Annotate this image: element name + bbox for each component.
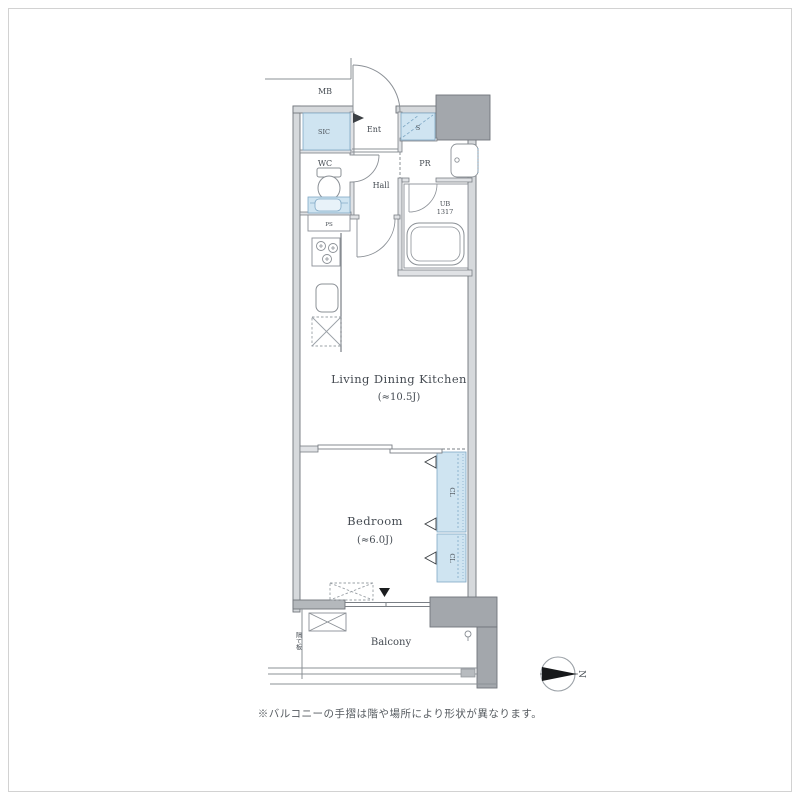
hatch-marker-icon (379, 588, 390, 597)
toilet-fixture (317, 168, 341, 200)
bedroom-area: (≈6.0J) (357, 535, 393, 546)
shoe-closet-label: SIC (318, 128, 330, 136)
bedroom-label: Bedroom (347, 514, 403, 528)
entrance-door-swing (352, 65, 400, 152)
compass-north-icon: N (540, 657, 586, 691)
powder-room-label: PR (419, 159, 431, 168)
bathtub-fixture (404, 184, 468, 268)
unit-bath-label: UB (440, 200, 450, 208)
wc-door-swing (352, 155, 379, 182)
kitchen-sink-fixture (316, 284, 338, 312)
refrigerator-space (312, 317, 341, 346)
closet-lower-label: CL (448, 553, 456, 563)
ac-indoor-space (330, 583, 373, 600)
closet-upper-label: CL (448, 487, 456, 497)
wc-basin-fixture (308, 197, 350, 213)
closet-door-markers (425, 456, 436, 564)
wc-label: WC (318, 159, 332, 168)
hall-label: Hall (373, 181, 390, 190)
balcony-label: Balcony (371, 637, 412, 648)
floorplan-drawing: N MB Ent S SIC WC Hall PR UB 1317 PS Liv… (0, 0, 800, 800)
balcony-drain-icon (465, 631, 471, 641)
pipe-space-label: PS (325, 222, 333, 228)
balcony-partition-label: 隔て板 (295, 631, 302, 651)
ldk-label: Living Dining Kitchen (331, 372, 467, 386)
ldk-door-swing (357, 219, 395, 257)
entrance-label: Ent (367, 125, 382, 134)
bedroom-window (345, 603, 430, 607)
meter-box-outline (265, 58, 351, 79)
ac-outdoor-space (309, 613, 346, 631)
ldk-area: (≈10.5J) (378, 392, 421, 403)
balcony-step-box (461, 669, 475, 677)
balcony-note: ※バルコニーの手摺は階や場所により形状が異なります。 (258, 707, 543, 720)
kitchen-stove-fixture (312, 238, 340, 266)
unit-bath-size: 1317 (437, 208, 454, 216)
storage-label: S (416, 124, 420, 132)
floorplan-canvas: N MB Ent S SIC WC Hall PR UB 1317 PS Liv… (0, 0, 800, 800)
meter-box-label: MB (318, 87, 332, 96)
washbasin-fixture (451, 144, 478, 177)
compass-north-label: N (576, 670, 586, 678)
sic-door-marker (353, 113, 364, 123)
